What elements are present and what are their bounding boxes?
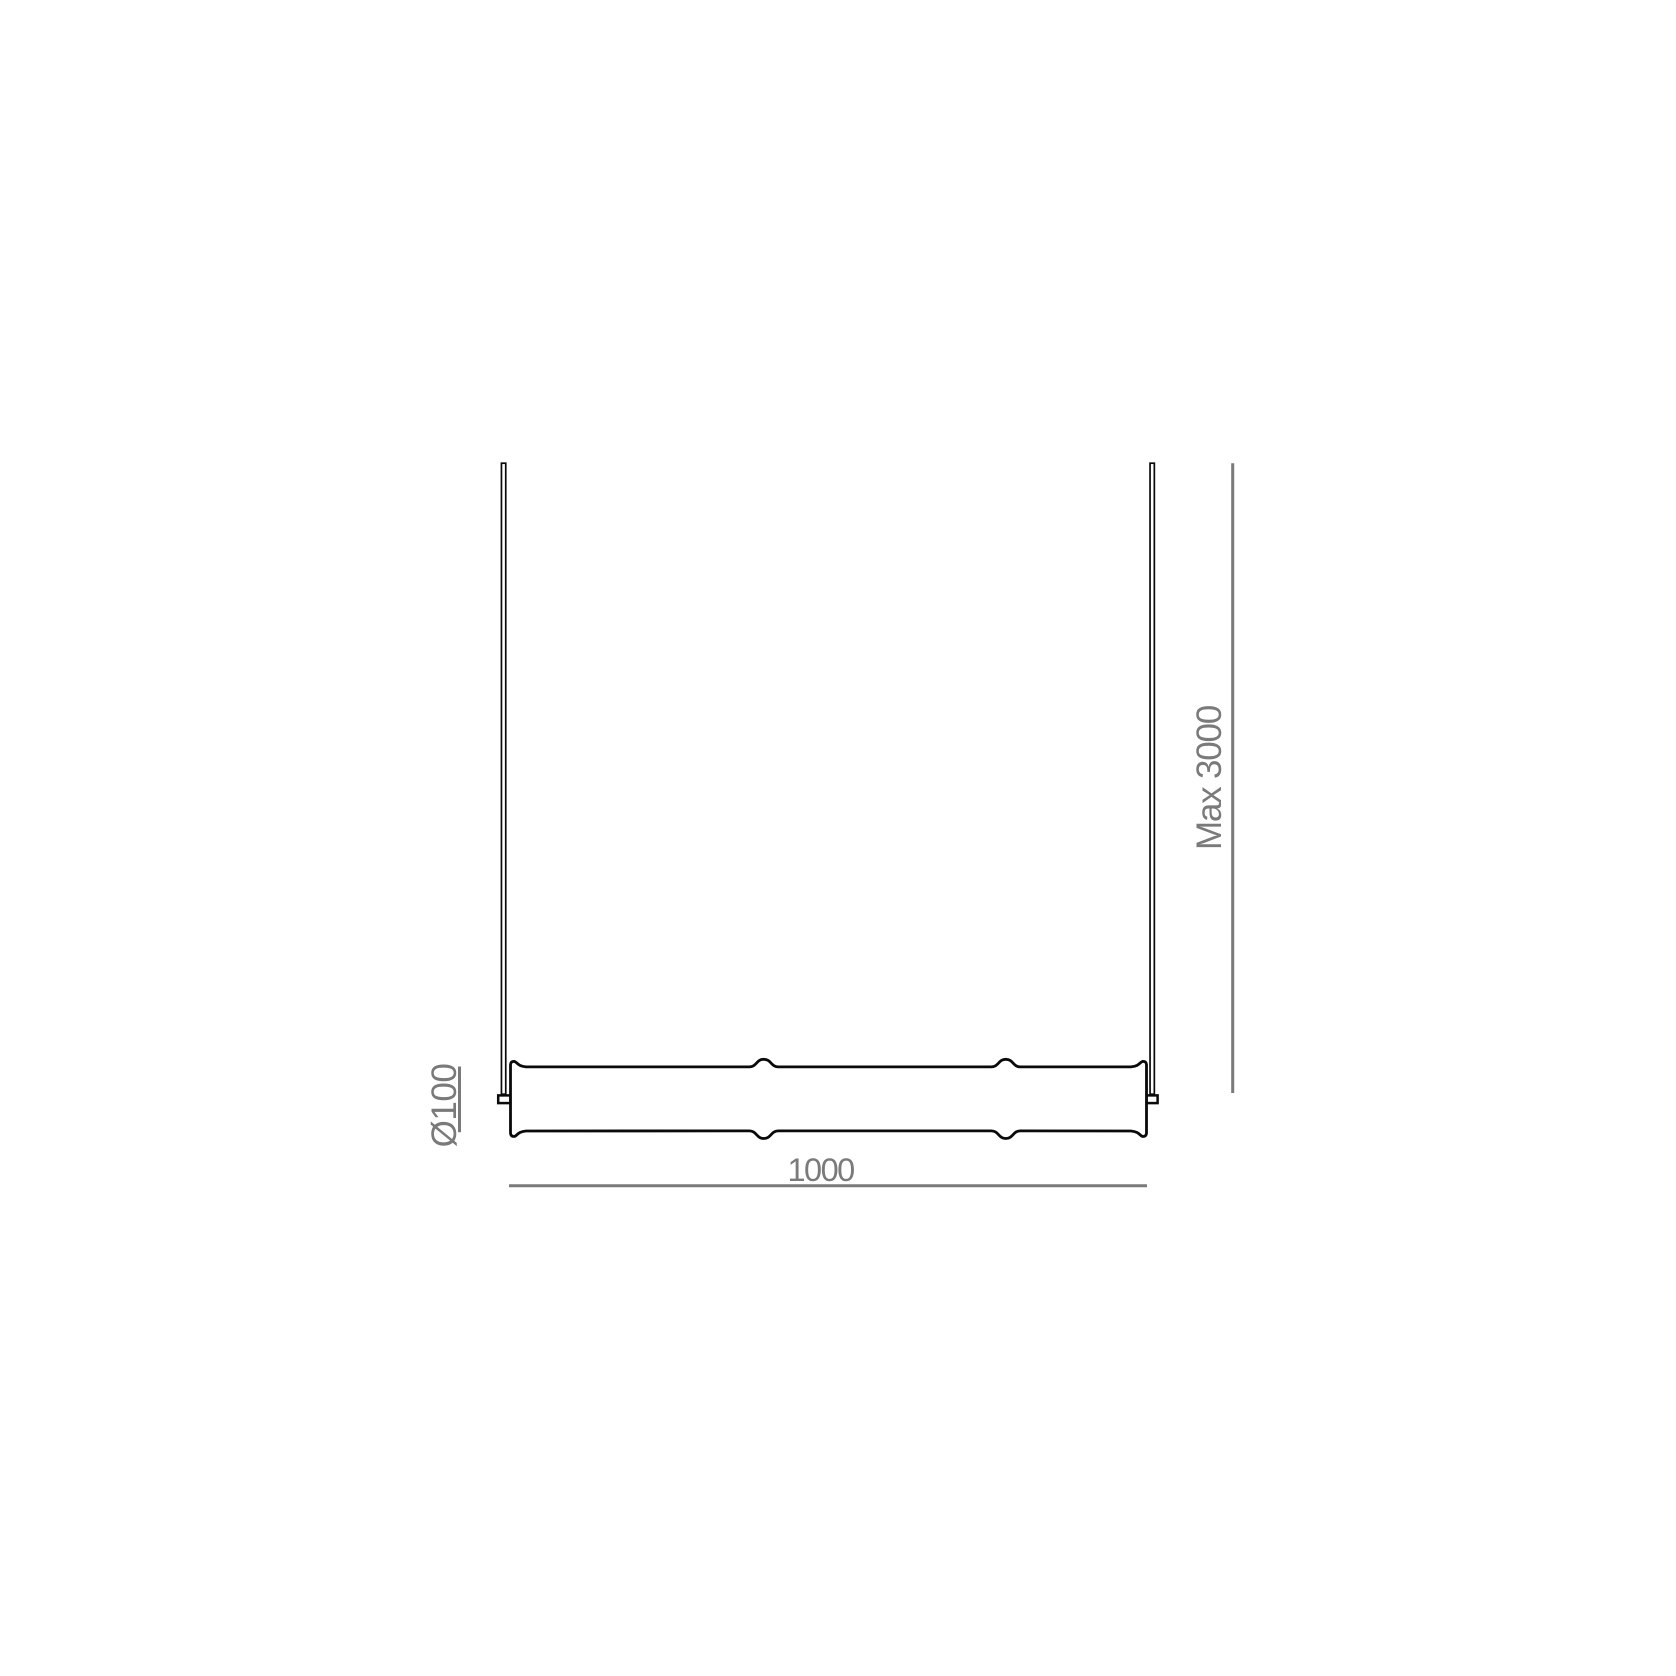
svg-text:Ø100: Ø100 bbox=[425, 1064, 464, 1148]
svg-text:1000: 1000 bbox=[787, 1152, 854, 1188]
svg-text:Max 3000: Max 3000 bbox=[1190, 705, 1229, 850]
